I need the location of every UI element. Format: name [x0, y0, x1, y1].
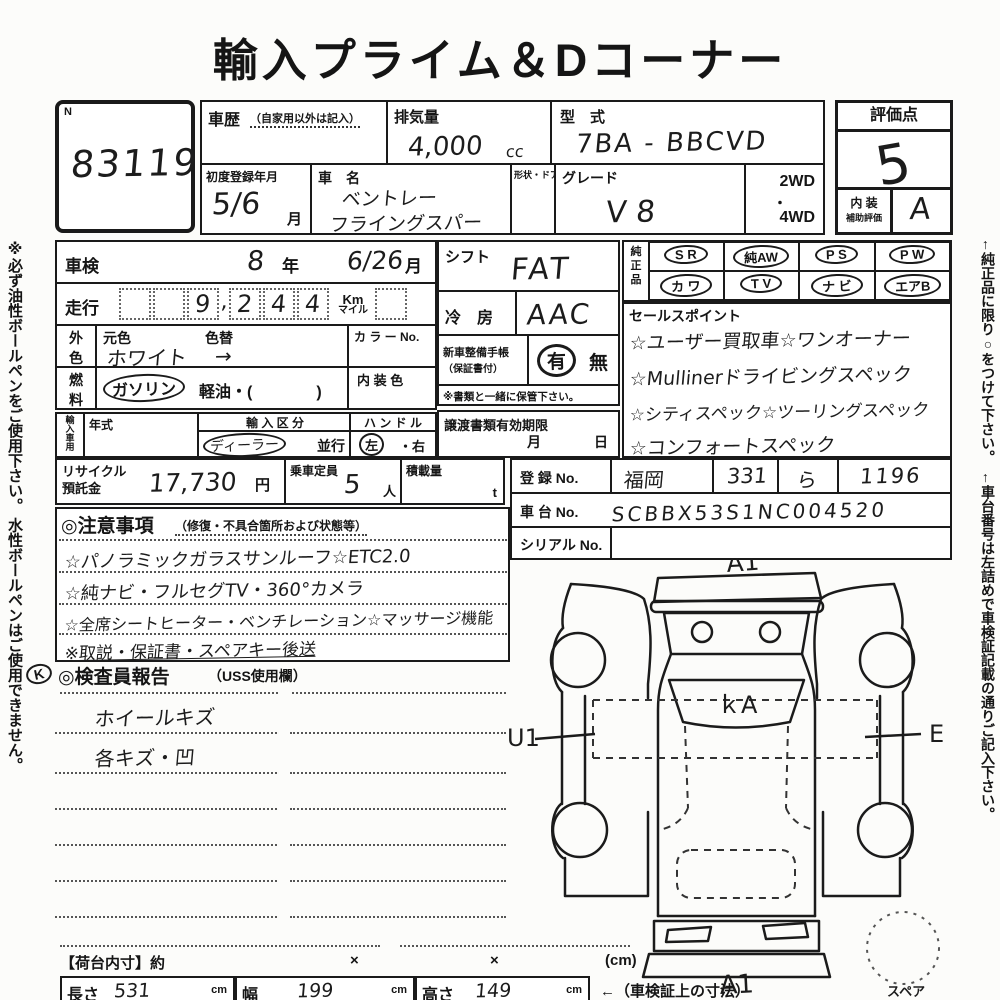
recycle-label-2: 預託金	[62, 481, 126, 498]
height-cell: 高さ 149 cm	[415, 976, 590, 1000]
shaken-label: 車検	[65, 252, 99, 277]
car-right-quarter	[823, 812, 900, 896]
diagram-label-left: U1	[507, 724, 540, 752]
diagram-label-top: A1	[725, 558, 760, 578]
car-right-fender	[814, 584, 894, 698]
width-cell: 幅 199 cm	[235, 976, 415, 1000]
genuine-kawa: カ ワ	[660, 273, 712, 298]
import-label: 輸入車用	[64, 415, 77, 451]
inspector-heading-note: （USS使用欄）	[208, 666, 307, 686]
genuine-label-1: 純	[624, 246, 648, 260]
serial-no-row: シリアル No.	[510, 526, 952, 560]
capacity-unit: 人	[383, 481, 396, 500]
lot-n-label: N	[64, 106, 72, 118]
cargo-row: 【荷台内寸】約 × × (cm)	[60, 952, 760, 974]
reg-no-row: 登 録 No. 福岡 331 ら 1196	[510, 458, 952, 494]
car-right-fender-edge	[894, 584, 903, 628]
reg-number: 1196	[859, 463, 923, 488]
genuine-label-3: 品	[624, 274, 648, 288]
car-left-fender	[571, 584, 651, 698]
shaken-month: 6/26	[346, 246, 405, 276]
car-left-rocker	[562, 692, 585, 804]
genuine-pw: P W	[889, 244, 936, 265]
reg-kana: ら	[796, 464, 819, 493]
mileage-label: 走行	[65, 294, 99, 319]
car-dashed-pillars	[685, 726, 788, 808]
car-headrest-right	[760, 622, 780, 642]
service-book-label-2: （保証書付）	[443, 360, 527, 375]
service-book-box: 新車整備手帳 （保証書付） 有 無	[437, 334, 620, 386]
service-book-label-1: 新車整備手帳	[443, 344, 527, 360]
width-unit: cm	[391, 984, 407, 996]
notes-heading-note: （修復・不具合箇所および状態等）	[175, 517, 367, 536]
car-body-left-side	[658, 654, 671, 916]
transfer-day: 日	[594, 432, 608, 452]
inspector-line: 各キズ・凹	[94, 741, 197, 772]
mileage-cell-empty	[153, 288, 185, 320]
right-margin-notes: ←純正品に限り○をつけて下さい。 ←車台番号は左詰めで車検証記載の通りご記入下さ…	[978, 238, 998, 988]
genuine-label-2: 正	[624, 260, 648, 274]
fuel-label-1: 燃	[57, 370, 95, 390]
mileage-digit: 4	[263, 288, 295, 320]
car-headlight-right	[763, 923, 808, 939]
handle-sep: ・	[399, 436, 412, 455]
first-reg-cell: 初度登録年月 5/6 月	[200, 163, 312, 235]
cargo-label: 【荷台内寸】約	[60, 952, 165, 973]
length-label: 長さ	[67, 981, 99, 1000]
car-dashed-hood	[677, 850, 795, 898]
mileage-digit: 9	[187, 288, 219, 320]
notes-box: ◎注意事項 （修復・不具合箇所および状態等） ☆パノラミックガラスサンルーフ☆E…	[55, 507, 510, 662]
import-block: 輸入車用 年式 輸 入 区 分 ディーラー 並行 ハ ン ド ル 左 ・ 右	[55, 412, 437, 458]
width-value: 199	[296, 980, 334, 1000]
sales-points-box: セールスポイント ☆ユーザー買取車☆ワンオーナー ☆Mullinerドライビング…	[622, 302, 952, 458]
chassis-no-row: 車 台 No. SCBBX53S1NC004520	[510, 492, 952, 528]
interior-score-value: A	[908, 192, 932, 227]
shift-box: シフト FAT	[437, 240, 620, 292]
handle-left-circled: 左	[359, 433, 385, 457]
inspector-line: ホイールキズ	[94, 701, 217, 732]
length-unit: cm	[211, 984, 227, 996]
lot-number-box: N 83119	[55, 100, 195, 233]
width-label: 幅	[242, 981, 258, 1000]
genuine-parts-box: 純 正 品 S R 純AW P S P W カ ワ T V ナ ビ エアB	[622, 240, 952, 302]
sales-point-line: ☆コンフォートスペック	[629, 430, 837, 461]
car-diagram: A1 ｋA U1 E A1 スペア	[505, 558, 960, 1000]
handle-right: 右	[412, 436, 425, 455]
notes-heading: ◎注意事項	[61, 511, 154, 538]
drive-4wd: 4WD	[779, 209, 815, 227]
interior-score-label-1: 内 装	[838, 194, 890, 211]
first-reg-value: 5/6	[210, 187, 261, 223]
spare-tire-circle	[867, 912, 939, 984]
genuine-sr: S R	[664, 244, 708, 265]
reg-area: 福岡	[623, 464, 666, 494]
transfer-box: 譲渡書類有効期限 月 日	[437, 410, 620, 458]
sales-point-line: ☆Mullinerドライビングスペック	[629, 360, 913, 392]
first-reg-unit: 月	[287, 208, 302, 229]
dimension-note: ←（車検証上の寸法）	[600, 980, 750, 1000]
shaken-month-unit: 月	[405, 252, 422, 277]
displacement-cell: 排気量 4,000 cc	[386, 100, 552, 168]
model-code-value: 7BA - BBCVD	[575, 126, 769, 159]
fuel-gasoline-circled: ガソリン	[103, 373, 186, 404]
diagram-label-right: E	[929, 720, 944, 748]
service-book-yes-circled: 有	[536, 343, 576, 377]
car-wheel-front-left	[551, 633, 605, 687]
mileage-unit-km: Km	[331, 293, 375, 306]
length-value: 531	[113, 980, 151, 1000]
shaken-year-unit: 年	[282, 252, 299, 277]
car-headrest-left	[692, 622, 712, 642]
ac-box: 冷 房 AAC	[437, 290, 620, 336]
length-cell: 長さ 531 cm	[60, 976, 235, 1000]
service-book-note: ※書類と一緒に保管下さい。	[443, 389, 579, 404]
car-rear-bar	[654, 573, 821, 602]
genuine-tv: T V	[740, 273, 783, 293]
drive-cell: 2WD ・ 4WD	[744, 163, 825, 235]
inspector-report: K ◎検査員報告 （USS使用欄） ホイールキズ 各キズ・凹	[30, 662, 510, 937]
fuel-row: 燃 料 ガソリン 軽油・( ) 内 装 色	[55, 366, 437, 410]
car-bumper	[654, 921, 819, 951]
grade-cell: グレード V 8	[554, 163, 746, 235]
car-right-rocker	[880, 692, 903, 804]
color-no-label: カ ラ ー No.	[354, 328, 419, 345]
year-model-label: 年式	[89, 416, 113, 433]
displacement-unit: cc	[505, 142, 524, 161]
import-dealer-circled: ディーラー	[203, 432, 287, 459]
recycle-row: リサイクル 預託金 17,730 円 乗車定員 5 人 積載量 t	[55, 458, 505, 505]
diagram-label-windshield: ｋA	[717, 691, 758, 719]
sales-point-line: ☆ユーザー買取車☆ワンオーナー	[629, 324, 913, 356]
note-line: ☆パノラミックガラスサンルーフ☆ETC2.0	[64, 542, 412, 574]
car-dashed-flares	[663, 808, 811, 829]
mileage-cell-empty	[119, 288, 151, 320]
capacity-label: 乗車定員	[290, 462, 338, 479]
page-title: 輸入プライム＆Dコーナー	[0, 24, 1000, 89]
cargo-x1: ×	[350, 952, 359, 969]
ext-color-label-1: 外	[57, 328, 95, 348]
mileage-cells: 9,244 Km マイル	[119, 288, 409, 320]
import-class-label: 輸 入 区 分	[199, 414, 351, 432]
note-line: ☆全席シートヒーター・ベンチレーション☆マッサージ機能	[64, 604, 495, 635]
score-label: 評価点	[870, 107, 918, 124]
drive-2wd: 2WD	[779, 173, 815, 191]
car-wheel-front-right	[860, 633, 914, 687]
genuine-ps: P S	[815, 244, 858, 264]
car-wheel-rear-left	[553, 803, 607, 857]
grade-value: V 8	[604, 195, 656, 231]
import-parallel-label: 並行	[317, 436, 345, 456]
recycle-unit: 円	[255, 474, 270, 495]
handle-label: ハ ン ド ル	[351, 414, 435, 432]
displacement-label: 排気量	[394, 106, 439, 127]
fuel-label-2: 料	[57, 390, 95, 410]
car-name-line2: フライングスパー	[329, 208, 484, 238]
height-value: 149	[474, 980, 512, 1000]
chassis-no-value: SCBBX53S1NC004520	[611, 498, 889, 527]
shaken-row: 車検 8 年 6/26 月	[55, 240, 437, 284]
transfer-month: 月	[527, 432, 541, 452]
car-name-cell: 車 名 ベントレー フライングスパー	[310, 163, 512, 235]
car-wheel-rear-right	[858, 803, 912, 857]
mileage-row: 走行 9,244 Km マイル	[55, 282, 437, 326]
color-change-arrow: →	[214, 344, 233, 368]
lot-number: 83119	[69, 141, 201, 186]
body-door-cell: 形状・ドア数	[510, 163, 556, 235]
interior-score-label-2: 補助評価	[838, 211, 890, 224]
auction-sheet: 輸入プライム＆Dコーナー ※必ず油性ボールペンをご使用下さい。 水性ボールペンは…	[0, 0, 1000, 1000]
displacement-value: 4,000	[407, 131, 484, 162]
genuine-aw: 純AW	[733, 244, 790, 269]
reg-no-label: 登 録 No.	[520, 468, 578, 488]
first-reg-label: 初度登録年月	[206, 168, 278, 185]
history-note: （自家用以外は記入）	[250, 110, 360, 128]
sales-point-line: ☆シティスペック☆ツーリングスペック	[629, 395, 931, 425]
chassis-no-label: 車 台 No.	[520, 502, 578, 522]
mileage-digit: 2	[229, 288, 261, 320]
car-headlight-left	[666, 927, 711, 942]
recycle-label-1: リサイクル	[62, 464, 126, 481]
inspector-k-mark: K	[24, 662, 54, 687]
interior-color-label: 内 装 色	[357, 370, 403, 389]
mileage-cell-empty	[375, 288, 407, 320]
service-book-note-strip: ※書類と一緒に保管下さい。	[437, 384, 620, 406]
shaken-year: 8	[246, 246, 266, 277]
recycle-value: 17,730	[148, 467, 238, 498]
shift-value: FAT	[509, 251, 572, 287]
car-body-right-side	[802, 654, 815, 916]
car-rear-deck	[664, 613, 809, 654]
reg-class: 331	[726, 464, 768, 489]
right-margin-note-1: ←純正品に限り○をつけて下さい。 ←車台番号は左詰めで車検証記載の通りご記入下さ…	[978, 238, 998, 988]
shift-label: シフト	[445, 246, 490, 267]
car-left-fender-edge	[562, 584, 571, 628]
genuine-airbag: エアB	[883, 273, 941, 298]
mileage-digit: 4	[297, 288, 329, 320]
model-code-label: 型 式	[560, 106, 605, 127]
serial-no-label: シリアル No.	[520, 535, 602, 555]
sales-points-label: セールスポイント	[629, 306, 741, 326]
diagram-right-tick	[865, 734, 921, 737]
service-book-no: 無	[589, 348, 608, 375]
ext-color-label-2: 色	[57, 348, 95, 368]
mileage-unit-mile: マイル	[331, 306, 375, 316]
history-label: 車歴	[208, 106, 240, 130]
load-label: 積載量	[406, 462, 442, 479]
cargo-unit: (cm)	[605, 952, 637, 969]
fuel-diesel-label: 軽油・( )	[199, 378, 322, 402]
grade-label: グレード	[562, 168, 618, 188]
ext-color-row: 外 色 元色 色替 ホワイト → カ ラ ー No.	[55, 324, 437, 368]
spare-tire-label: スペア	[887, 985, 925, 1000]
note-line: ※取説・保証書・スペアキー後送	[64, 635, 318, 664]
inspector-heading: ◎検査員報告	[58, 662, 170, 689]
ac-label: 冷 房	[445, 304, 493, 328]
model-code-cell: 型 式 7BA - BBCVD	[550, 100, 825, 165]
score-box: 評価点 5 内 装 補助評価 A	[835, 100, 953, 235]
ac-value: AAC	[526, 297, 593, 331]
left-margin-note: ※必ず油性ボールペンをご使用下さい。 水性ボールペンはご使用できません。	[4, 240, 25, 780]
note-line: ☆純ナビ・フルセグTV・360°カメラ	[64, 574, 366, 605]
genuine-navi: ナ ビ	[811, 273, 863, 298]
cargo-dotline	[400, 945, 630, 947]
load-unit: t	[493, 485, 497, 500]
capacity-value: 5	[343, 470, 362, 500]
cargo-dotline	[60, 945, 380, 947]
cargo-x2: ×	[490, 952, 499, 969]
height-unit: cm	[566, 984, 582, 996]
car-name-line1: ベントレー	[341, 183, 439, 212]
history-cell: 車歴 （自家用以外は記入）	[200, 100, 388, 165]
height-label: 高さ	[422, 981, 454, 1000]
